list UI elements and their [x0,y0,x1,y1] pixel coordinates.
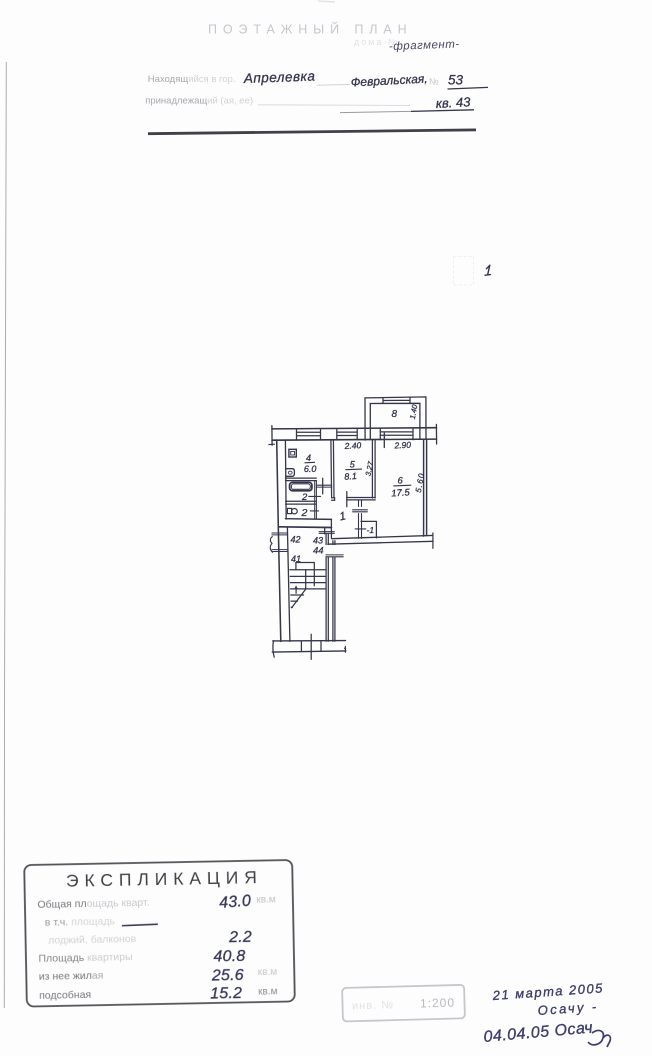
svg-text:8: 8 [392,409,398,420]
svg-text:42: 42 [291,535,301,545]
svg-text:-1: -1 [367,525,375,535]
svg-text:Февральская,: Февральская, [350,71,427,89]
svg-text:17.5: 17.5 [391,487,411,499]
svg-text:Осачу -: Осачу - [537,999,599,1018]
svg-text:Площадь квартиры: Площадь квартиры [38,951,132,965]
svg-text:кв. 43: кв. 43 [435,94,471,111]
svg-text:53: 53 [448,73,464,88]
svg-text:кв.м: кв.м [258,967,278,978]
svg-text:Общая площадь кварт.: Общая площадь кварт. [37,897,149,911]
svg-text:Находящийся в гор.: Находящийся в гор. [148,74,236,85]
svg-text:44: 44 [313,546,324,557]
svg-text:6: 6 [398,476,404,487]
svg-text:43.0: 43.0 [219,893,252,912]
svg-text:04.04.05 Осач: 04.04.05 Осач [483,1019,594,1046]
svg-text:принадлежащий (ая, ее): принадлежащий (ая, ее) [145,96,253,107]
svg-text:2.90: 2.90 [393,440,411,451]
svg-text:40.8: 40.8 [213,948,245,966]
svg-text:1:200: 1:200 [420,996,455,1011]
svg-text:25.6: 25.6 [211,967,244,985]
svg-text:ЭКСПЛИКАЦИЯ: ЭКСПЛИКАЦИЯ [66,867,263,891]
svg-text:подсобная: подсобная [39,989,91,1002]
svg-text:6.0: 6.0 [304,464,317,474]
svg-text:ПОЭТАЖНЫЙ ПЛАН: ПОЭТАЖНЫЙ ПЛАН [208,22,413,37]
svg-text:5: 5 [350,460,356,470]
svg-text:в т.ч. площадь: в т.ч. площадь [45,915,116,928]
svg-text:1.40: 1.40 [408,403,420,420]
svg-text:кв.м: кв.м [258,986,278,997]
svg-text:1: 1 [338,510,347,523]
svg-text:4: 4 [306,453,311,463]
svg-text:из нее жилая: из нее жилая [39,970,104,983]
svg-text:инв. №: инв. № [352,999,394,1012]
svg-text:лоджий, балконов: лоджий, балконов [48,933,137,947]
svg-text:, №: , № [424,77,439,87]
svg-text:8.1: 8.1 [344,471,357,482]
svg-text:3.27: 3.27 [363,460,375,477]
svg-text:43: 43 [313,536,323,546]
svg-text:кв.м: кв.м [256,894,276,905]
svg-text:2: 2 [301,507,308,519]
svg-text:2: 2 [301,492,308,503]
svg-text:Апрелевка: Апрелевка [243,69,316,87]
svg-text:15.2: 15.2 [210,985,242,1003]
svg-text:5.60: 5.60 [414,472,426,494]
svg-text:41: 41 [291,554,301,564]
svg-text:-фрагмент-: -фрагмент- [389,39,460,53]
svg-text:2.40: 2.40 [343,440,361,451]
svg-text:2.2: 2.2 [228,929,252,946]
